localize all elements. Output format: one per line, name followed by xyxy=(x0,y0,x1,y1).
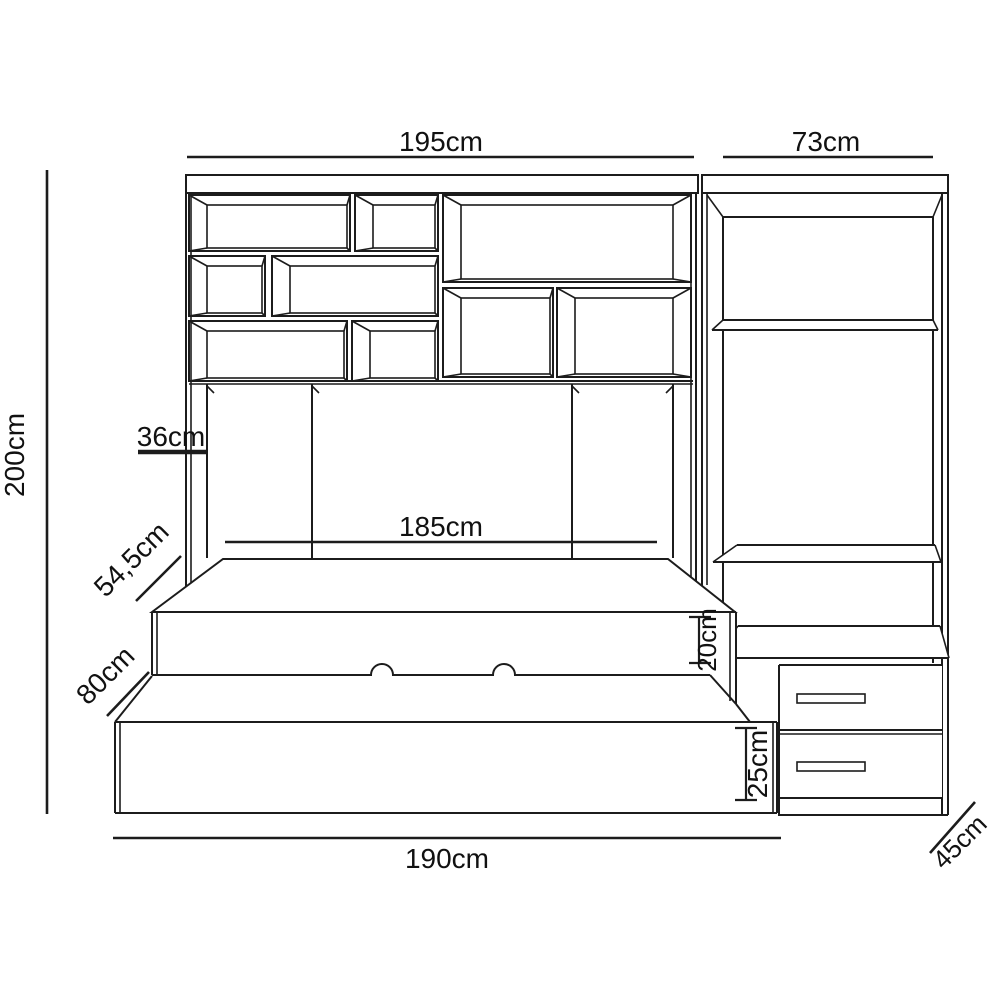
wardrobe-shelf-upper xyxy=(712,320,938,330)
trundle-bed xyxy=(115,676,777,813)
bed-right-connector xyxy=(736,704,750,722)
shelf-wall-unit xyxy=(186,175,698,610)
bed-left-connector xyxy=(115,676,152,722)
dim-label-upper-bed-height: 20cm xyxy=(692,608,722,672)
wardrobe-drawers xyxy=(779,665,942,815)
dim-label-upper-bed-depth: 54,5cm xyxy=(88,516,175,603)
dim-label-alcove-depth: 36cm xyxy=(137,421,205,452)
furniture-dimension-diagram: 195cm 73cm 200cm 36cm 185cm 54,5cm 80cm … xyxy=(0,0,1000,1000)
wardrobe-top-band xyxy=(702,175,948,193)
wardrobe-right-bevel xyxy=(933,195,942,217)
dim-label-trundle-height: 25cm xyxy=(742,730,773,798)
dim-label-total-height: 200cm xyxy=(0,413,30,497)
shelf-compartments xyxy=(189,195,691,381)
wall-unit-top-band xyxy=(186,175,698,193)
dim-label-bed-total-length: 190cm xyxy=(405,843,489,874)
dim-label-wall-unit-width: 195cm xyxy=(399,126,483,157)
bed-top-face xyxy=(152,559,735,612)
wardrobe-unit xyxy=(702,175,949,815)
wardrobe-left-bevel xyxy=(707,195,723,217)
dim-label-wardrobe-width: 73cm xyxy=(792,126,860,157)
dim-label-bed-inner-length: 185cm xyxy=(399,511,483,542)
wardrobe-compartment-bottom xyxy=(714,626,949,658)
dim-label-lower-bed-depth: 80cm xyxy=(70,640,140,710)
pullout-bed xyxy=(152,559,736,704)
wardrobe-shelf-lower xyxy=(713,545,941,562)
